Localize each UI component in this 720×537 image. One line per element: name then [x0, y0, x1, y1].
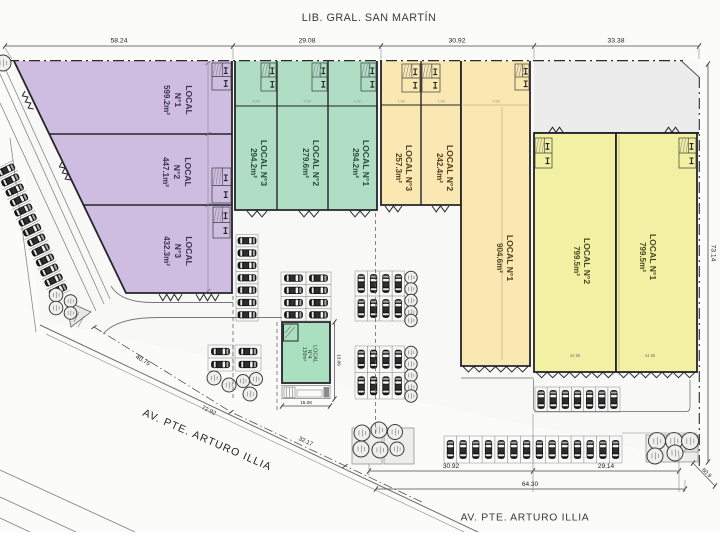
svg-text:N°3: N°3 — [173, 244, 183, 259]
svg-text:294.2m²: 294.2m² — [249, 148, 258, 178]
svg-text:7.00: 7.00 — [303, 100, 310, 104]
svg-text:7.00: 7.00 — [397, 100, 404, 104]
svg-text:904.6m²: 904.6m² — [495, 243, 504, 273]
svg-text:AV. PTE. ARTURO ILLIA: AV. PTE. ARTURO ILLIA — [461, 513, 590, 524]
svg-text:7.00: 7.00 — [353, 100, 360, 104]
svg-text:29.08: 29.08 — [298, 38, 315, 45]
svg-text:257.3m²: 257.3m² — [394, 153, 403, 183]
svg-text:LOCAL N°2: LOCAL N°2 — [445, 145, 455, 191]
svg-text:LOCAL: LOCAL — [183, 157, 193, 187]
svg-text:29.14: 29.14 — [598, 463, 615, 470]
svg-text:LOCAL: LOCAL — [184, 236, 194, 266]
svg-text:LOCAL N°2: LOCAL N°2 — [582, 238, 592, 284]
svg-text:N°2: N°2 — [172, 165, 182, 180]
svg-text:242.4m²: 242.4m² — [435, 153, 444, 183]
svg-text:279.6m²: 279.6m² — [301, 148, 310, 178]
svg-text:N°1: N°1 — [173, 93, 183, 108]
svg-text:LOCAL: LOCAL — [184, 85, 194, 115]
svg-text:LOCAL N°3: LOCAL N°3 — [404, 145, 414, 191]
svg-text:7.00: 7.00 — [252, 100, 259, 104]
svg-text:33.38: 33.38 — [607, 38, 624, 45]
svg-text:599.2m²: 599.2m² — [162, 85, 171, 115]
svg-text:44.95: 44.95 — [645, 353, 656, 358]
svg-text:LOCAL N°3: LOCAL N°3 — [259, 140, 269, 186]
svg-text:LOCAL N°1: LOCAL N°1 — [361, 140, 371, 186]
svg-text:130m²: 130m² — [301, 347, 307, 362]
svg-text:432.3m²: 432.3m² — [162, 236, 171, 266]
svg-text:LIB. GRAL. SAN MARTÍN: LIB. GRAL. SAN MARTÍN — [302, 11, 437, 24]
svg-text:44.95: 44.95 — [570, 353, 581, 358]
svg-text:799.5m²: 799.5m² — [638, 242, 647, 272]
svg-text:294.2m²: 294.2m² — [351, 148, 360, 178]
svg-text:7.00: 7.00 — [492, 100, 499, 104]
svg-text:LOCAL N°1: LOCAL N°1 — [648, 234, 658, 280]
svg-text:799.5m²: 799.5m² — [572, 246, 581, 276]
svg-text:15.08: 15.08 — [300, 400, 312, 405]
svg-text:447.1m²: 447.1m² — [161, 157, 170, 187]
svg-text:LOCAL N°2: LOCAL N°2 — [311, 140, 321, 186]
svg-text:30.92: 30.92 — [443, 463, 460, 470]
svg-text:LOCAL N°1: LOCAL N°1 — [505, 235, 515, 281]
svg-text:13.06: 13.06 — [337, 354, 342, 366]
svg-text:58.24: 58.24 — [110, 38, 127, 45]
svg-text:64.30: 64.30 — [522, 481, 539, 488]
svg-text:30.92: 30.92 — [448, 38, 465, 45]
svg-text:73.14: 73.14 — [710, 244, 717, 261]
svg-text:7.00: 7.00 — [437, 100, 444, 104]
